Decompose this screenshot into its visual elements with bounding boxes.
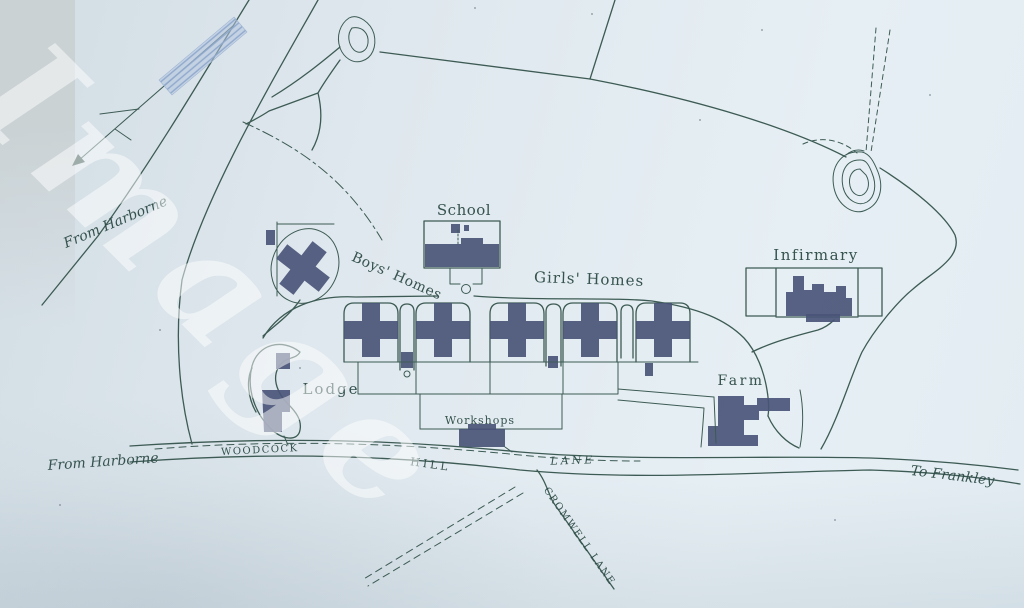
- building-outbuilding: [645, 363, 653, 376]
- embankment-hatching: [159, 17, 247, 95]
- building-boys-home-west: [259, 218, 350, 314]
- building-infirmary: [746, 268, 882, 322]
- building-cottage: [563, 303, 617, 357]
- label-farm: Farm: [717, 373, 764, 389]
- building-lodge: [250, 344, 300, 445]
- label-lodge: Lodge: [302, 380, 359, 398]
- label-road-lane: LANE: [549, 453, 595, 468]
- building-outbuilding: [401, 352, 413, 368]
- label-school: School: [437, 201, 491, 219]
- building-farm: [708, 390, 803, 447]
- building-cottage: [416, 303, 470, 357]
- building-cottage: [490, 303, 544, 357]
- cottage-buildings: [344, 303, 690, 377]
- label-from-harborne-upper: From Harborne: [60, 194, 170, 253]
- garden-plots: [344, 362, 714, 447]
- school-well-circle: [462, 285, 471, 294]
- label-workshops: Workshops: [445, 414, 515, 427]
- label-road-hill: HILL: [409, 455, 451, 474]
- label-girls-homes: Girls' Homes: [534, 268, 645, 290]
- label-to-frankley: To Frankley: [910, 463, 996, 489]
- footpath-to-southwest: [362, 487, 523, 586]
- estate-north-boundary: [590, 79, 846, 157]
- scanned-map-photo: { "watermark": { "text": "Image" }, "lab…: [0, 0, 1024, 608]
- site-map-drawing: School Boys' Homes Girls' Homes Infirmar…: [0, 0, 1024, 608]
- footpath-dashdot: [243, 122, 382, 240]
- pond: [338, 17, 374, 62]
- label-cromwell-lane: CROMWELL LANE: [541, 485, 617, 587]
- estate-drives: [249, 296, 834, 448]
- loop-feature: [803, 28, 890, 212]
- label-from-harborne-lower: From Harborne: [46, 450, 159, 474]
- building-school: [424, 221, 500, 294]
- building-cottage: [344, 303, 398, 357]
- label-infirmary: Infirmary: [773, 246, 858, 264]
- building-cottage: [636, 303, 690, 357]
